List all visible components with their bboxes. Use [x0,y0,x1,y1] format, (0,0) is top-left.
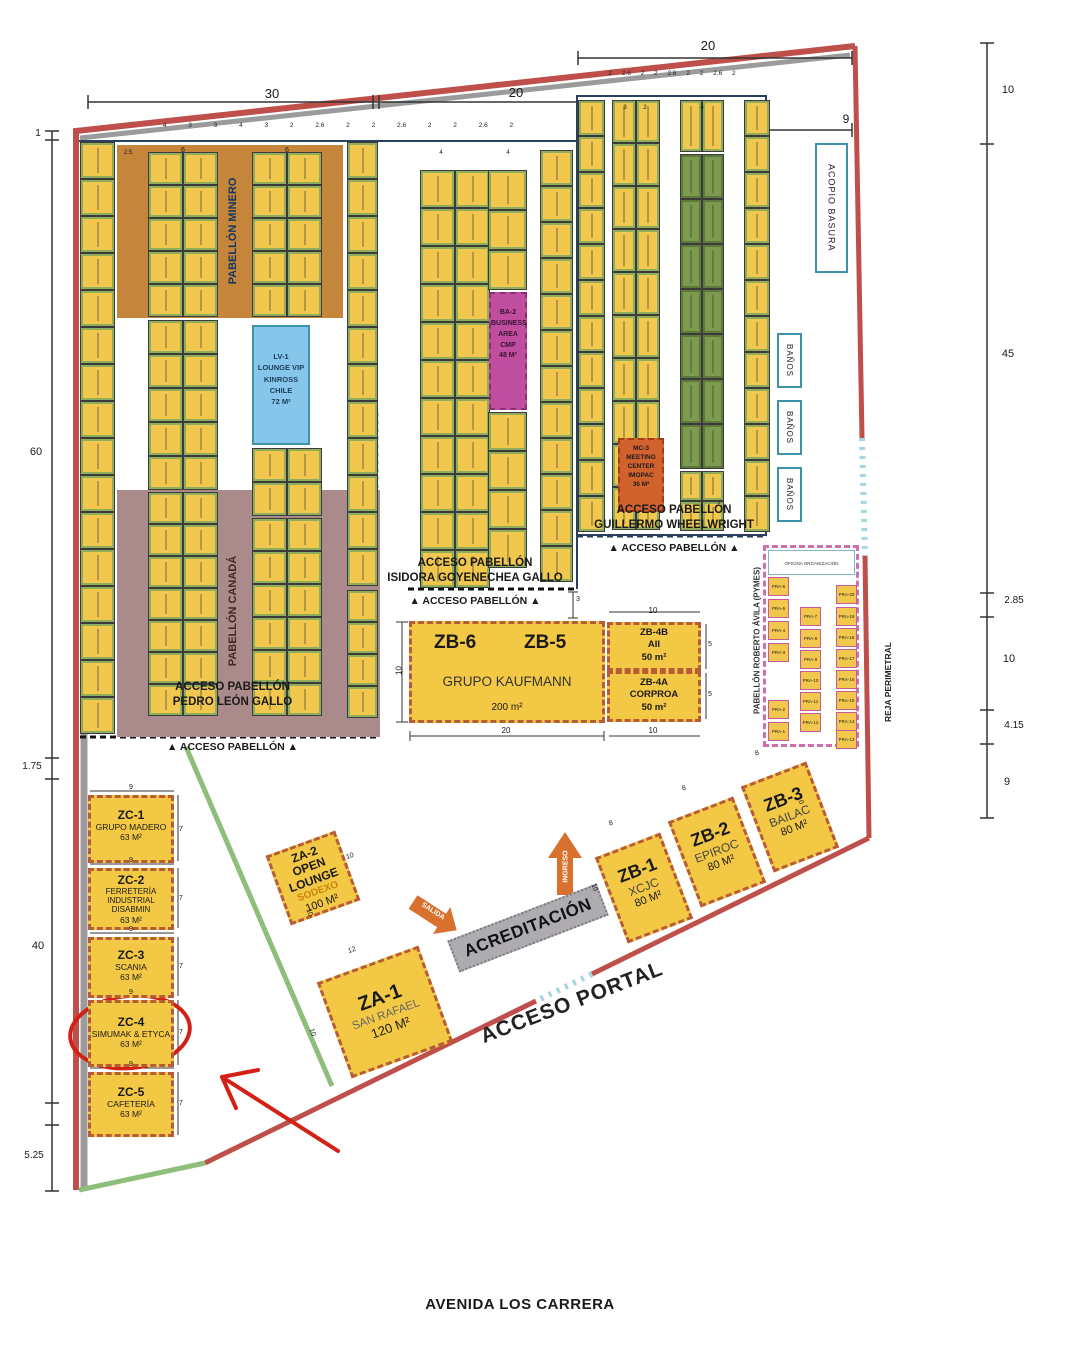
acceso-pedro-marker: ▲ ACCESO PABELLÓN ▲ [145,741,320,753]
pymes-booth-pra-19: PRA-19 [836,607,857,626]
acceso-guillermo-label: ACCESO PABELLÓN GUILLERMO WHEELWRIGHT [585,503,763,533]
pabellon-canada-label: PABELLÓN CANADÁ [227,526,239,696]
dimension-label: 1.75 [0,761,72,772]
pymes-booth-pra-9: PRA-9 [800,650,821,669]
dimension-label: 9 [806,112,886,126]
dimension-label: 7 [141,1029,221,1036]
dimension-label: 45 [968,348,1048,360]
dimension-label: 5.25 [0,1150,74,1161]
dimension-label: 10 [968,84,1048,96]
exhibition-site-plan: OFICINA ORGANIZACIÓN LV-1 LOUNGE VIP KIN… [0,0,1080,1361]
pymes-booth-pra-15: PRA-15 [836,691,857,710]
pymes-booth-pra-16: PRA-16 [836,670,857,689]
dimension-label: 10 [395,631,404,711]
reja-perimetral-label: REJA PERIMETRAL [883,622,893,742]
pymes-booth-pra-5: PRA-5 [768,599,789,618]
pymes-booth-pra-14: PRA-14 [836,712,857,731]
dimension-label: 2.85 [974,595,1054,606]
acceso-guillermo-marker: ▲ ACCESO PABELLÓN ▲ [585,542,763,554]
dimension-label: 9 [91,989,171,996]
dimension-label: 9 [967,776,1047,788]
pymes-booth-pra-6: PRA-6 [768,577,789,596]
dimension-label: 8 [645,771,722,806]
dimension-label: 40 [0,940,78,952]
dimension-label: 9 [91,1061,171,1068]
pymes-booth-pra-20: PRA-20 [836,585,857,604]
dimension-label: 20 [668,38,748,53]
dimension-label: 4 [468,150,548,156]
dimension-label: 7 [141,895,221,902]
dimension-label: 9 [91,926,171,933]
dimension-label: 10 [613,606,693,615]
dimension-label: 30 [232,86,312,101]
acceso-pedro-label: ACCESO PABELLÓN PEDRO LEÓN GALLO [145,680,320,710]
dimension-label: 4.15 [974,720,1054,731]
pymes-booth-pra-10: PRA-10 [800,671,821,690]
dimension-label: 7 [141,963,221,970]
pymes-booth-pra-17: PRA-17 [836,649,857,668]
acceso-isidora-label: ACCESO PABELLÓN ISIDORA GOYENECHEA GALLO [385,556,565,586]
ingreso-label: INGRESO [563,837,570,897]
dimension-label: 60 [0,446,76,458]
pymes-booth-pra-4: PRA-4 [768,621,789,640]
salida-label: SALIDA [410,895,456,928]
dimension-label: 5 [670,691,750,698]
dimension-label: 5 [670,641,750,648]
dimension-label: 8 [572,806,649,841]
dimension-label: 10 [311,840,389,874]
dimension-label: 9 [91,857,171,864]
pymes-booth-pra-13: PRA-13 [836,730,857,749]
small-dims-left-row: 4 3 3 4 3 2 2.6 2 2 2.6 2 2 2.6 2 [102,122,574,129]
pymes-pavilion-label: PABELLÓN ROBERTO ÁVILA (PYMES) [753,541,762,741]
pymes-booth-pra-7: PRA-7 [800,607,821,626]
dimension-label: 3 [538,596,618,603]
dimension-label: 20 [466,726,546,735]
pymes-booth-pra-8: PRA-8 [800,629,821,648]
small-dims-right-row: 2 2.6 2 2 2.6 2 2 2.6 2 [578,70,766,77]
dimension-label: 10 [292,874,326,952]
dimension-label: 4 [662,105,742,111]
dimension-label: 6 [143,147,223,154]
dimension-label: 10 [969,653,1049,665]
acceso-portal-label: ACCESO PORTAL [446,945,697,1061]
dimension-label: 6 [247,147,327,154]
dimension-label: 20 [476,85,556,100]
avenida-label: AVENIDA LOS CARRERA [360,1296,680,1313]
dimension-label: 10 [295,994,329,1072]
dimension-label: 12 [313,934,391,968]
pymes-booth-pra-11: PRA-11 [800,692,821,711]
dimension-label: 9 [91,784,171,791]
dimension-label: 7 [141,826,221,833]
pymes-booth-pra-3: PRA-3 [768,643,789,662]
dimension-label: 10 [576,849,611,926]
pabellon-minero-label: PABELLÓN MINERO [227,146,239,316]
dimension-label: 1 [0,128,78,139]
dimension-label: 7 [141,1100,221,1107]
dimension-label: 10 [782,762,817,839]
pymes-booth-pra-2: PRA-2 [768,700,789,719]
pymes-booth-pra-18: PRA-18 [836,628,857,647]
pymes-booth-pra-12: PRA-12 [800,713,821,732]
dimension-label: 10 [613,726,693,735]
